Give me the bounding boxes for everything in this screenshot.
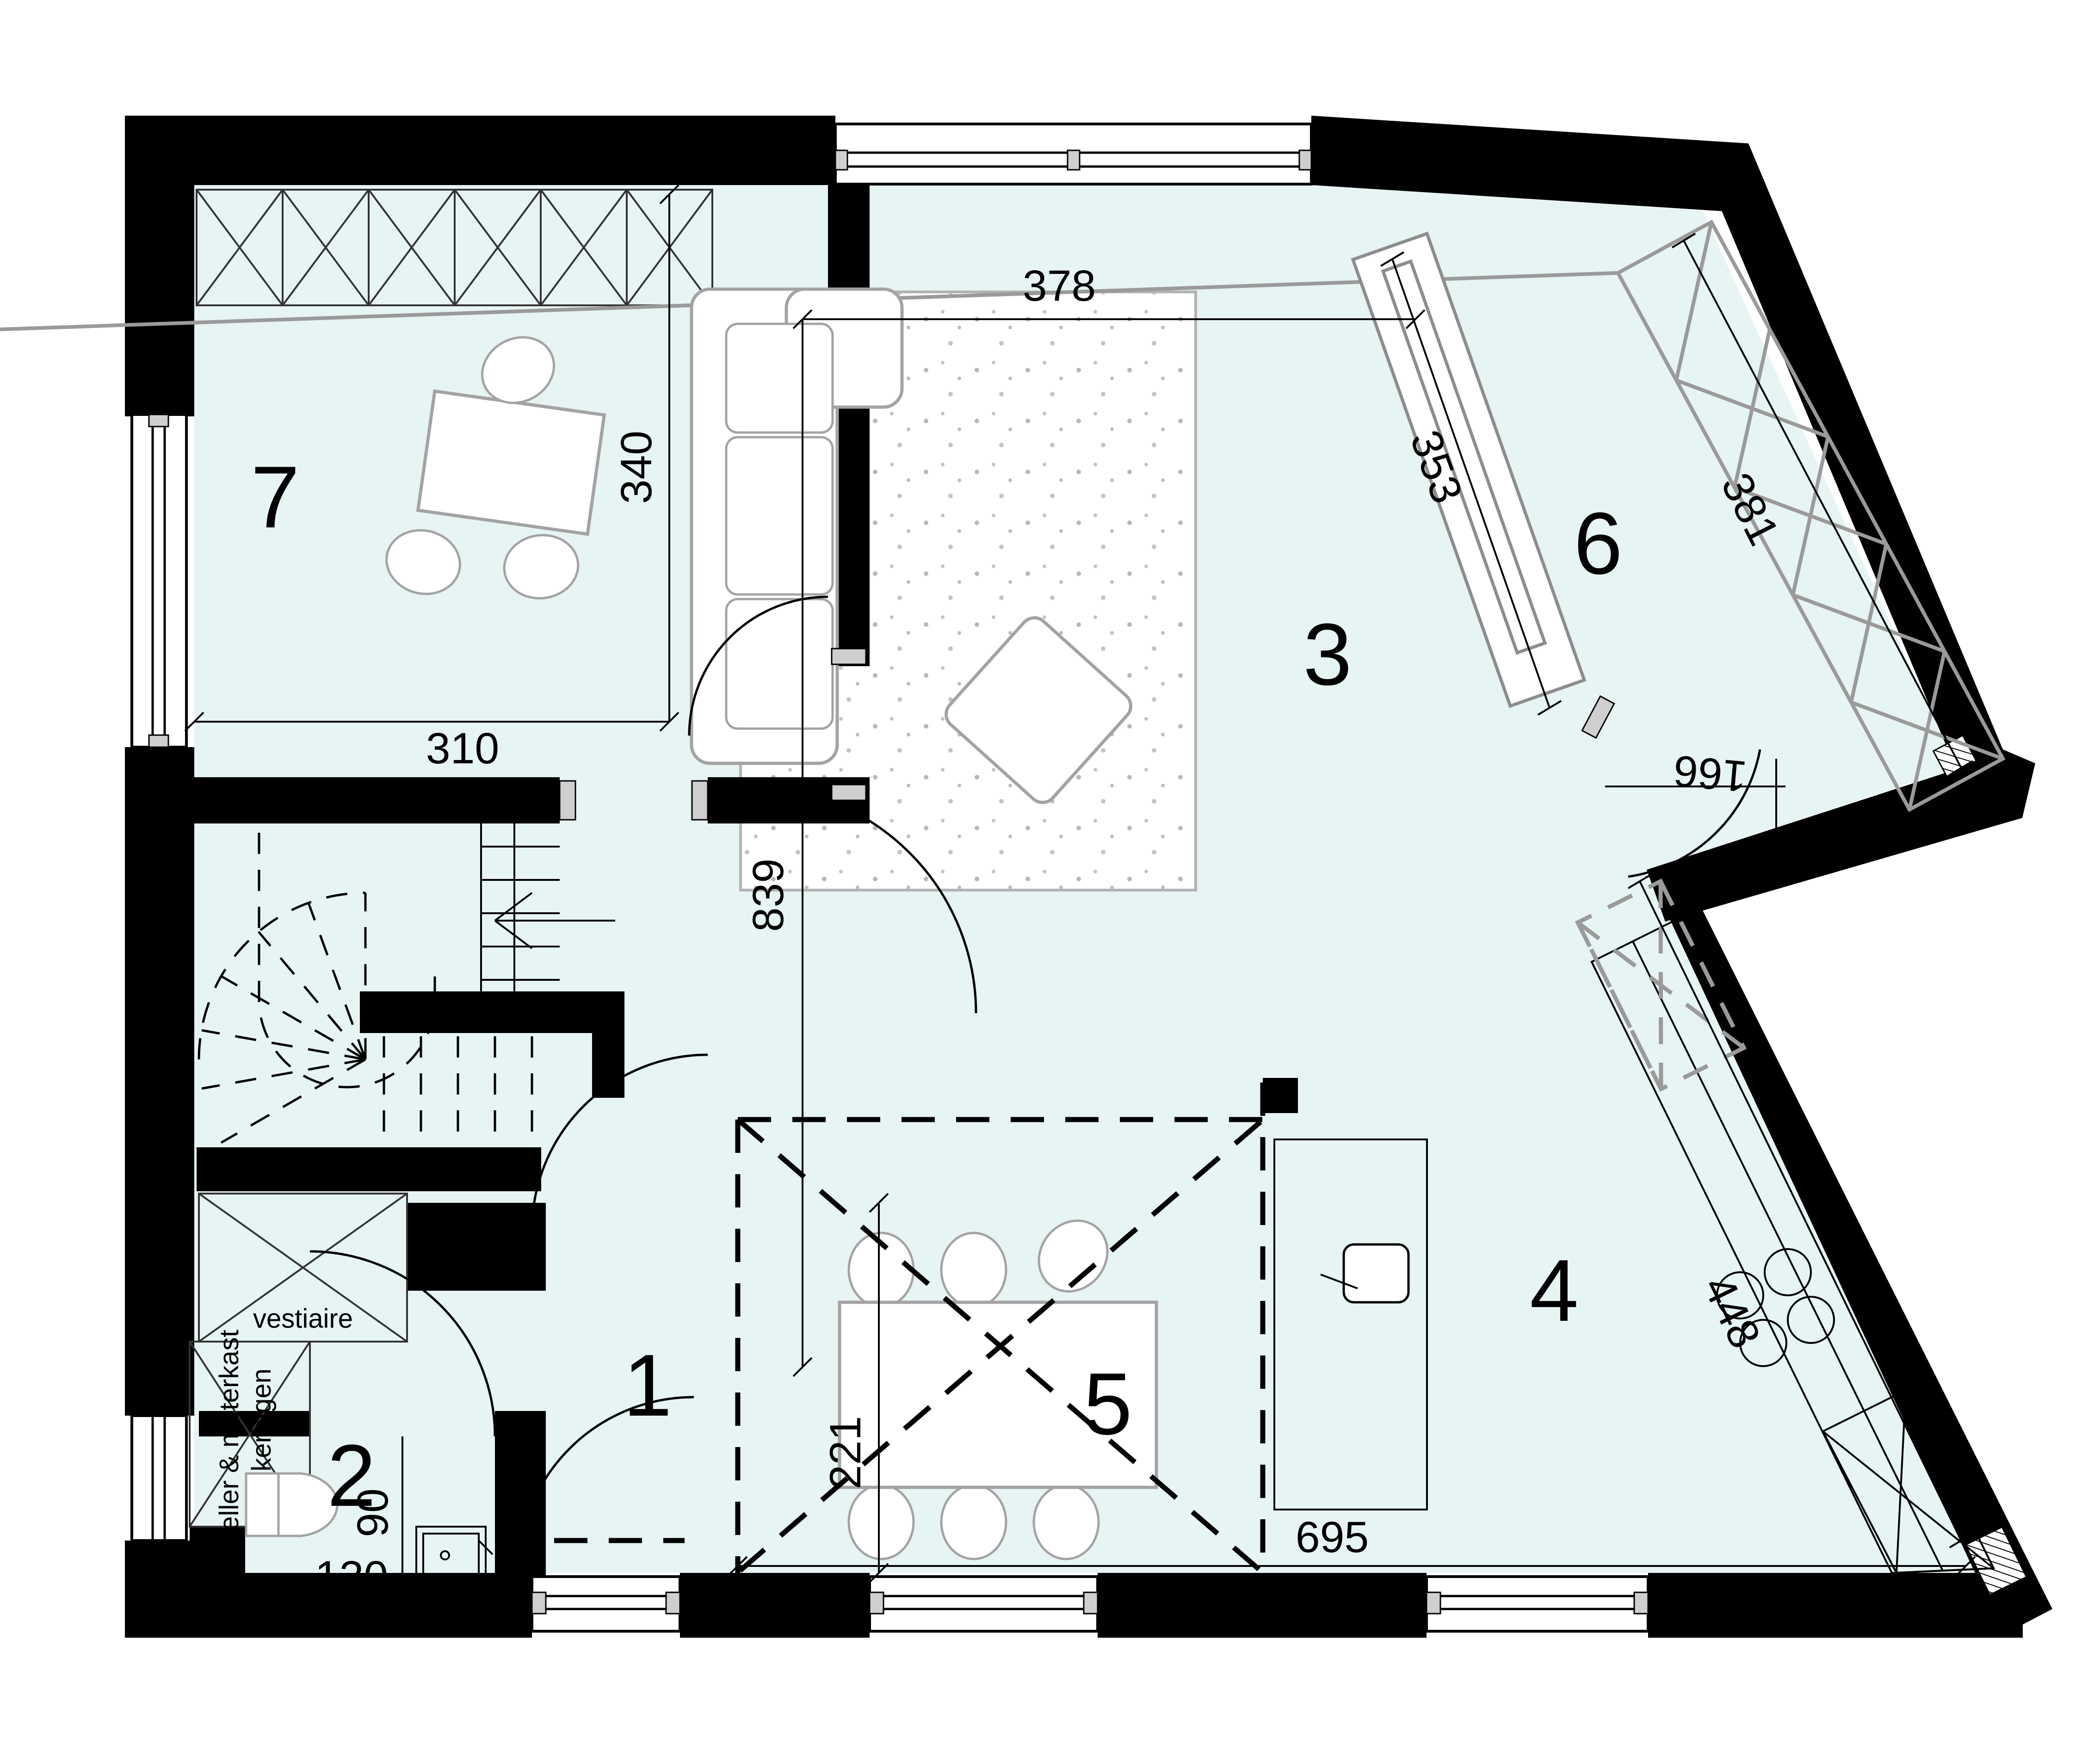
vestiaire-label: vestiaire	[253, 1304, 353, 1334]
window-bottom-dining	[870, 1577, 1098, 1631]
dining-chair	[849, 1485, 914, 1559]
room-label-1: 1	[623, 1337, 672, 1435]
dim-310: 310	[426, 724, 500, 773]
room-label-4: 4	[1530, 1242, 1579, 1340]
floor-plan: vestiaire teller & meterkast zekeringen	[0, 0, 2100, 1739]
room-label-6: 6	[1574, 495, 1623, 593]
dim-340: 340	[612, 431, 661, 504]
sink	[1344, 1244, 1408, 1302]
room-label-2: 2	[327, 1427, 376, 1525]
column	[1263, 1078, 1298, 1113]
dining-chair	[941, 1233, 1006, 1307]
dim-695: 695	[1296, 1513, 1369, 1562]
meter-label-1: teller & meterkast	[214, 1330, 244, 1538]
window-bottom-entry	[532, 1577, 680, 1631]
window-bottom-kitchen	[1427, 1577, 1648, 1631]
room-label-5: 5	[1083, 1355, 1132, 1453]
window-left-room2	[132, 1416, 186, 1541]
toilet	[246, 1473, 337, 1536]
dining-chair	[941, 1485, 1006, 1559]
window-left-room7	[132, 415, 186, 747]
dim-378: 378	[1023, 261, 1096, 310]
window-top	[835, 124, 1311, 184]
dim-166: 166	[1672, 746, 1749, 801]
dim-221: 221	[821, 1416, 870, 1490]
dining-chair	[1034, 1485, 1099, 1559]
dim-839: 839	[744, 859, 793, 932]
room-label-3: 3	[1303, 606, 1352, 704]
dim-130: 130	[315, 1552, 389, 1601]
room-label-7: 7	[251, 448, 300, 546]
